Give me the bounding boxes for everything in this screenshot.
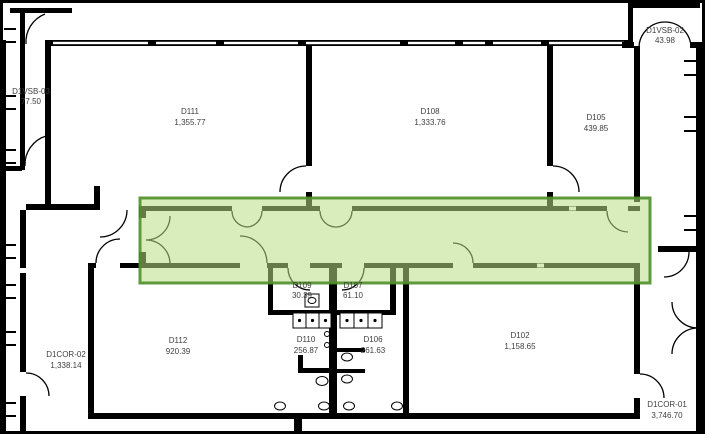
door-arc-stair [664,252,689,277]
room-label-d111-name: D111 [181,107,199,116]
room-label-d107-name: D107 [343,281,363,290]
wall-north-mullion [216,40,224,46]
room-label-d106-area: 261.63 [361,346,386,355]
door-arc-d112 [96,239,120,263]
wall-north-mullion [485,40,493,46]
wall-cor02-west [20,396,26,431]
wall-d112-south [88,413,273,419]
wall-d108-d105 [547,46,553,166]
wall-shaft-top [10,8,72,13]
wall-shaft-stub [4,166,22,171]
wall-stub [94,186,100,206]
wall-d106-d102 [403,263,409,419]
wall-north-mullion [400,40,408,46]
sink-icon [311,319,314,322]
room-label-d1cor-02-name: D1COR-02 [46,350,86,359]
sink-icon [324,319,327,322]
room-label-d1cor-01-name: D1COR-01 [647,400,687,409]
door-arc-shaft-low [25,136,46,166]
fixture-icon [325,343,330,348]
room-label-d1cor-02-area: 1,338.14 [50,361,82,370]
wall-washroom-south [273,413,403,419]
wall-north-mullion [298,40,306,46]
wall-d105-east [634,46,640,202]
wall-stub [294,419,302,431]
wall-cor02-north [26,204,100,210]
wall-north-mullion [148,40,156,46]
door-arc-d105 [553,166,579,192]
door-arc-d102-east [640,374,664,398]
wall-vestibule-top [632,3,700,8]
wall-north-mullion [455,40,463,46]
room-label-d1vsb-03-name: D1VSB-03 [12,87,50,96]
door-arc-cor02 [100,210,127,237]
toilet-icon [392,402,403,410]
stall-partition [337,369,365,373]
room-label-d105-name: D105 [586,113,606,122]
toilet-icon [319,402,330,410]
wall-cor02-west [20,273,26,372]
sink-icon [359,319,362,322]
wall-d102-south [403,413,640,419]
room-label-d1vsb-03-area: 77.50 [21,97,42,106]
room-label-d111-area: 1,355.77 [174,118,206,127]
room-label-d1cor-01-area: 3,746.70 [651,411,683,420]
wall-vestibule-jamb [622,42,634,48]
wall-stair [658,246,700,252]
room-label-d112-name: D112 [169,336,188,345]
room-label-d109-name: D109 [292,281,312,290]
door-arc-d111 [280,166,306,192]
room-label-d109-area: 30.39 [292,291,313,300]
floor-plan-svg: D1VSB-03 77.50 D111 1,355.77 D108 1,333.… [0,0,705,434]
sink-icon [345,319,348,322]
sink-icon [298,319,301,322]
wall-cor02-west [20,210,26,268]
door-arc-east-entry [672,302,698,328]
room-label-d110-area: 256.87 [294,346,319,355]
wall-west [0,40,6,431]
toilet-icon [344,402,355,410]
room-label-d105-area: 439.85 [584,124,609,133]
room-label-d1vsb-02-area: 43.98 [655,36,676,45]
toilet-icon [342,353,353,361]
room-label-d112-area: 920.39 [166,347,191,356]
fixture-icon [325,332,330,337]
door-arc-shaft-top [26,14,45,44]
toilet-icon [316,377,328,386]
corridor-highlight[interactable] [140,198,650,283]
door-arc-east-entry [672,328,698,354]
room-label-d106-name: D106 [363,335,383,344]
wall-east [696,46,702,431]
room-label-d108-area: 1,333.76 [414,118,446,127]
room-label-d110-name: D110 [297,335,316,344]
stall-partition [298,368,332,373]
wall-d111-west [45,42,51,208]
room-label-d102-name: D102 [510,331,530,340]
room-label-d102-area: 1,158.65 [504,342,536,351]
toilet-icon [275,402,286,410]
floor-plan-canvas: D1VSB-03 77.50 D111 1,355.77 D108 1,333.… [0,0,705,434]
wall-d112-west [88,263,94,419]
wall-north-mullion [541,40,549,46]
wall-vestibule-jamb [690,42,702,48]
wall-vestibule-left [628,2,633,48]
door-arc-cor02-west [26,373,49,396]
wall-washroom-center [329,268,337,413]
wall-d111-d108 [306,46,312,166]
room-label-d108-name: D108 [420,107,440,116]
sink-icon [373,319,376,322]
room-label-d107-area: 61.10 [343,291,364,300]
room-label-d1vsb-02-name: D1VSB-02 [646,26,684,35]
toilet-icon [342,375,353,383]
